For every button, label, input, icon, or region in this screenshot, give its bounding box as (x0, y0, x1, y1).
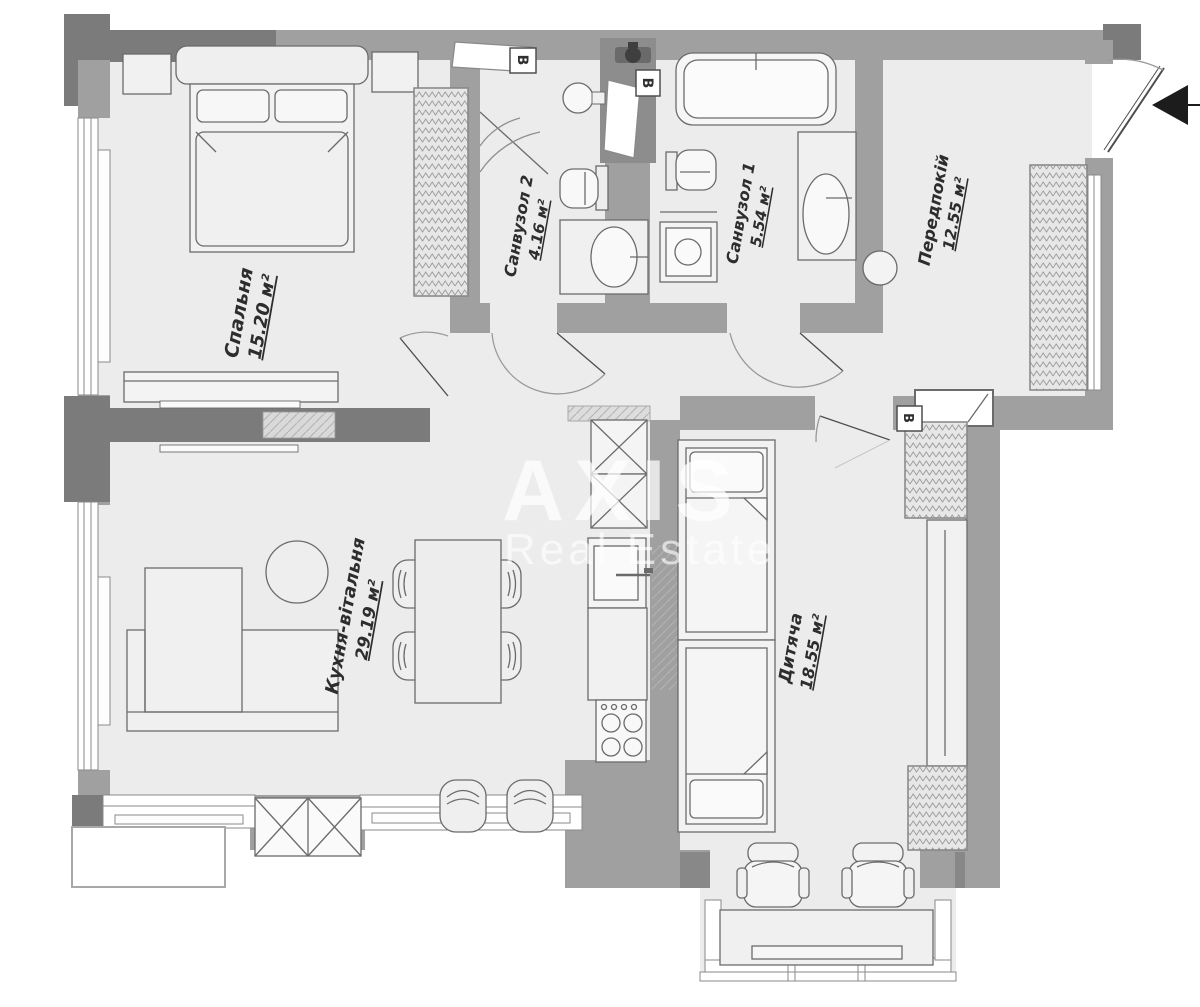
vent-label-kids: В (900, 413, 915, 423)
window-hallway-right (1088, 175, 1101, 390)
pouf-1 (440, 780, 486, 832)
toilet-bathroom1 (666, 150, 716, 190)
watermark: AXIS Real Estate (502, 443, 775, 574)
wall-bay-left-dark (680, 852, 710, 888)
wall-pocket-hatch (263, 412, 335, 438)
window-sill-bedroom (98, 150, 110, 362)
dresser-bedroom (124, 372, 338, 402)
wall-bedroom-living (80, 408, 430, 442)
wall-right-step (1000, 396, 1113, 430)
wall-bath-south-1 (450, 303, 490, 333)
kitchen-counter (588, 608, 647, 700)
wall-bath-south-3 (800, 303, 883, 333)
office-chair-1 (737, 843, 809, 907)
wall-right-top (1085, 40, 1113, 64)
wall-kids-right (965, 420, 1000, 888)
wardrobe-kids-top-hatch (905, 422, 967, 518)
sideboard-x-cabinet (255, 798, 361, 856)
watermark-subtitle: Real Estate (504, 525, 775, 574)
pillow-left (197, 90, 269, 122)
wall-bottom-left-dark (72, 795, 104, 828)
nightstand-left (123, 54, 171, 94)
nightstand-right (372, 52, 418, 92)
window-sill-living (98, 577, 110, 725)
shelf-kids (927, 520, 967, 766)
bathtub (676, 53, 836, 125)
single-bed-2 (678, 640, 775, 832)
stove (596, 700, 646, 762)
terrace-ledge (72, 827, 225, 887)
vanity-bathroom2 (560, 220, 648, 294)
vent-panel (604, 80, 640, 158)
desk (720, 910, 933, 965)
wall-kitchen-top-hatch2 (568, 406, 650, 421)
vent-label-shaft: В (639, 78, 655, 89)
vent-label-top: В (514, 55, 530, 66)
wall-kids-top-1 (680, 396, 815, 430)
tv-console-living (160, 445, 298, 452)
coffee-table (266, 541, 328, 603)
vent-marker-top: В (510, 48, 536, 73)
tv-console-bedroom (160, 401, 300, 408)
stool-hallway (863, 251, 897, 285)
shoe-bench (915, 390, 993, 426)
floor-plan-drawing: В В В Спальня 15.20 м² Санвузол 2 4.16 м… (0, 0, 1200, 1007)
wall-left-1 (78, 60, 110, 118)
toilet-bathroom2 (560, 166, 608, 210)
pillow-right (275, 90, 347, 122)
wardrobe-hallway-hatch (1030, 165, 1087, 390)
wardrobe-bedroom-hatch (414, 88, 468, 296)
office-chair-2 (842, 843, 914, 907)
wardrobe-kids-bottom-hatch (908, 766, 967, 850)
window-bottom-a (103, 795, 255, 828)
entry-arrow-icon (1152, 85, 1200, 125)
washing-machine (660, 212, 717, 282)
vent-marker-kids: В (897, 406, 922, 431)
window-bedroom-left (78, 118, 110, 395)
dining-table (415, 540, 501, 703)
pouf-2 (507, 780, 553, 832)
vent-marker-shaft: В (636, 70, 660, 96)
vanity-bathroom1 (798, 132, 856, 260)
wall-bath-south-2 (557, 303, 727, 333)
blanket (196, 132, 348, 246)
floor-plan-canvas: В В В Спальня 15.20 м² Санвузол 2 4.16 м… (0, 0, 1200, 1007)
double-bed (176, 46, 368, 252)
